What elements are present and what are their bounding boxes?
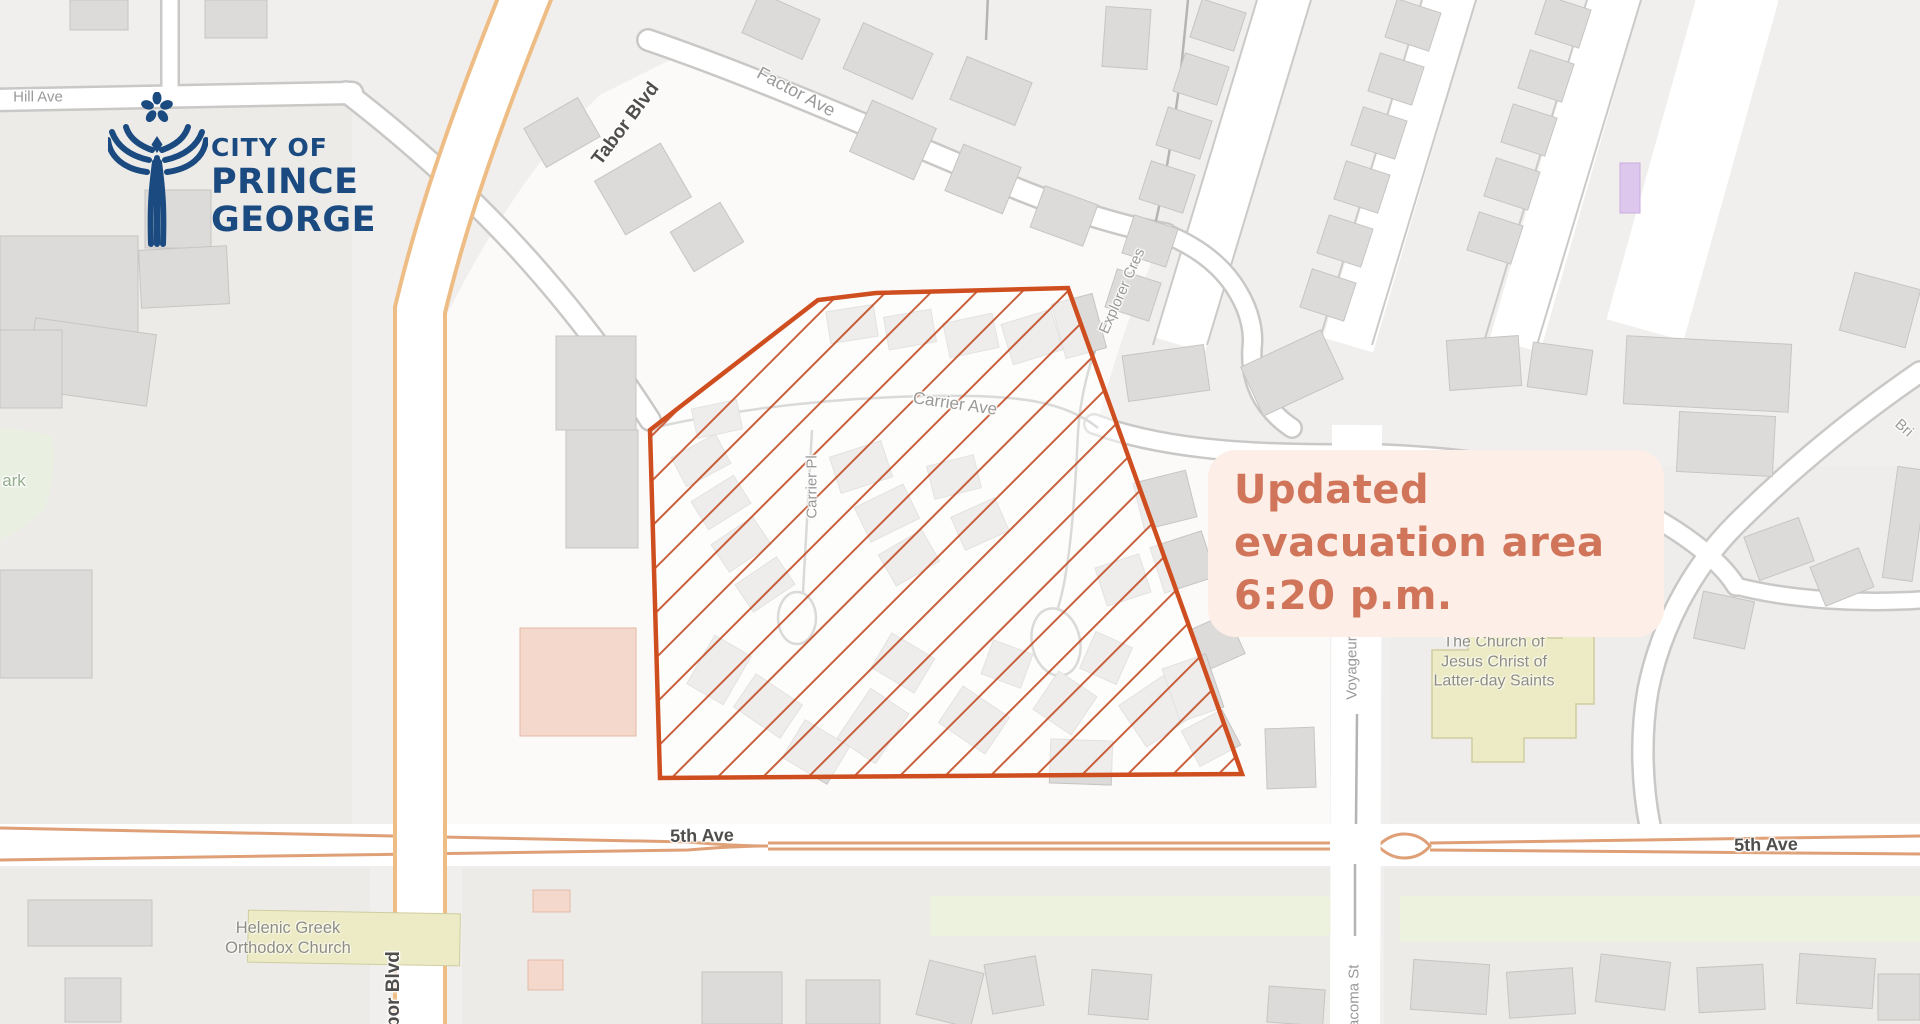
poi-line: Latter-day Saints xyxy=(1384,672,1604,692)
callout-line-1: Updated xyxy=(1234,464,1638,517)
evacuation-update-callout: Updated evacuation area 6:20 p.m. xyxy=(1208,450,1664,637)
logo-line-george: GEORGE xyxy=(211,201,376,239)
city-logo-wordmark: CITY OF PRINCE GEORGE xyxy=(211,132,376,239)
logo-line-city-of: CITY OF xyxy=(211,132,376,163)
road-5th-ave xyxy=(0,824,1920,866)
poi-label-helenic-church: Helenic Greek Orthodox Church xyxy=(168,918,408,958)
poi-line: Orthodox Church xyxy=(168,938,408,958)
evacuation-map-graphic: Hill Ave Tabor Blvd Factor Ave Carrier A… xyxy=(0,0,1920,1024)
callout-line-3: 6:20 p.m. xyxy=(1234,570,1638,623)
street-label-voyageur: Voyageur xyxy=(1344,636,1361,699)
street-label-5th-ave-east: 5th Ave xyxy=(1734,834,1798,856)
street-label-hill-ave: Hill Ave xyxy=(13,89,63,106)
street-label-tacoma-st: Tacoma St xyxy=(1346,965,1363,1024)
street-label-5th-ave-west: 5th Ave xyxy=(670,825,734,847)
city-of-prince-george-logo: CITY OF PRINCE GEORGE xyxy=(104,88,434,253)
poi-label-lds-church: The Church of Jesus Christ of Latter-day… xyxy=(1384,633,1604,692)
poi-line: Jesus Christ of xyxy=(1384,652,1604,672)
street-label-carrier-pl: Carrier Pl xyxy=(804,455,821,518)
poi-line: Helenic Greek xyxy=(168,918,408,938)
logo-line-prince: PRINCE xyxy=(211,163,376,201)
park-label: ark xyxy=(2,471,26,491)
city-logo-tree-icon xyxy=(108,92,208,252)
street-label-tabor-blvd-south: Tabor Blvd xyxy=(383,951,405,1024)
callout-line-2: evacuation area xyxy=(1234,517,1638,570)
